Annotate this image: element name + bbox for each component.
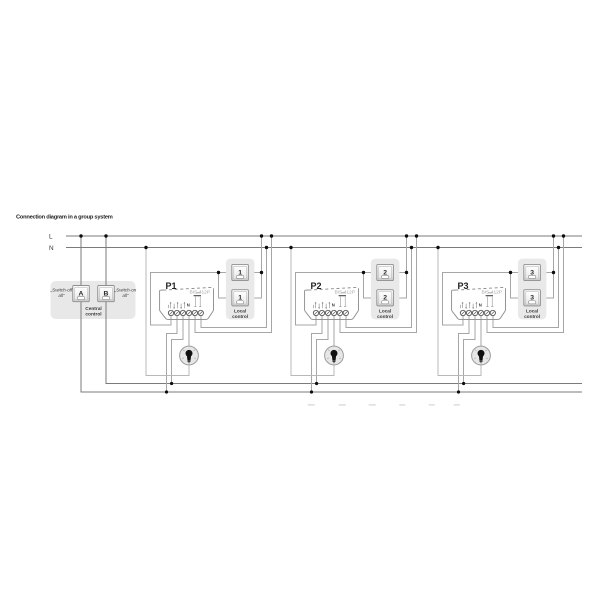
- svg-text:„Switch-on: „Switch-on: [114, 288, 137, 293]
- svg-text:all”: all”: [122, 293, 129, 298]
- svg-text:all”: all”: [58, 293, 65, 298]
- svg-text:Connection diagram in a group: Connection diagram in a group system: [16, 214, 113, 220]
- svg-text:P2: P2: [311, 281, 322, 291]
- svg-text:3: 3: [530, 295, 534, 302]
- svg-text:1: 1: [238, 295, 242, 302]
- svg-text:P1: P1: [166, 281, 177, 291]
- svg-text:A: A: [79, 290, 84, 297]
- svg-text:„Switch-off: „Switch-off: [50, 288, 73, 293]
- svg-text:Central: Central: [85, 306, 102, 312]
- svg-text:N: N: [49, 245, 54, 252]
- svg-text:3: 3: [530, 269, 534, 276]
- svg-text:1: 1: [238, 269, 242, 276]
- svg-text:2: 2: [383, 269, 387, 276]
- svg-text:P3: P3: [458, 281, 469, 291]
- svg-text:L: L: [49, 233, 53, 240]
- svg-text:control: control: [85, 312, 101, 318]
- svg-text:2: 2: [383, 295, 387, 302]
- svg-text:B: B: [104, 290, 109, 297]
